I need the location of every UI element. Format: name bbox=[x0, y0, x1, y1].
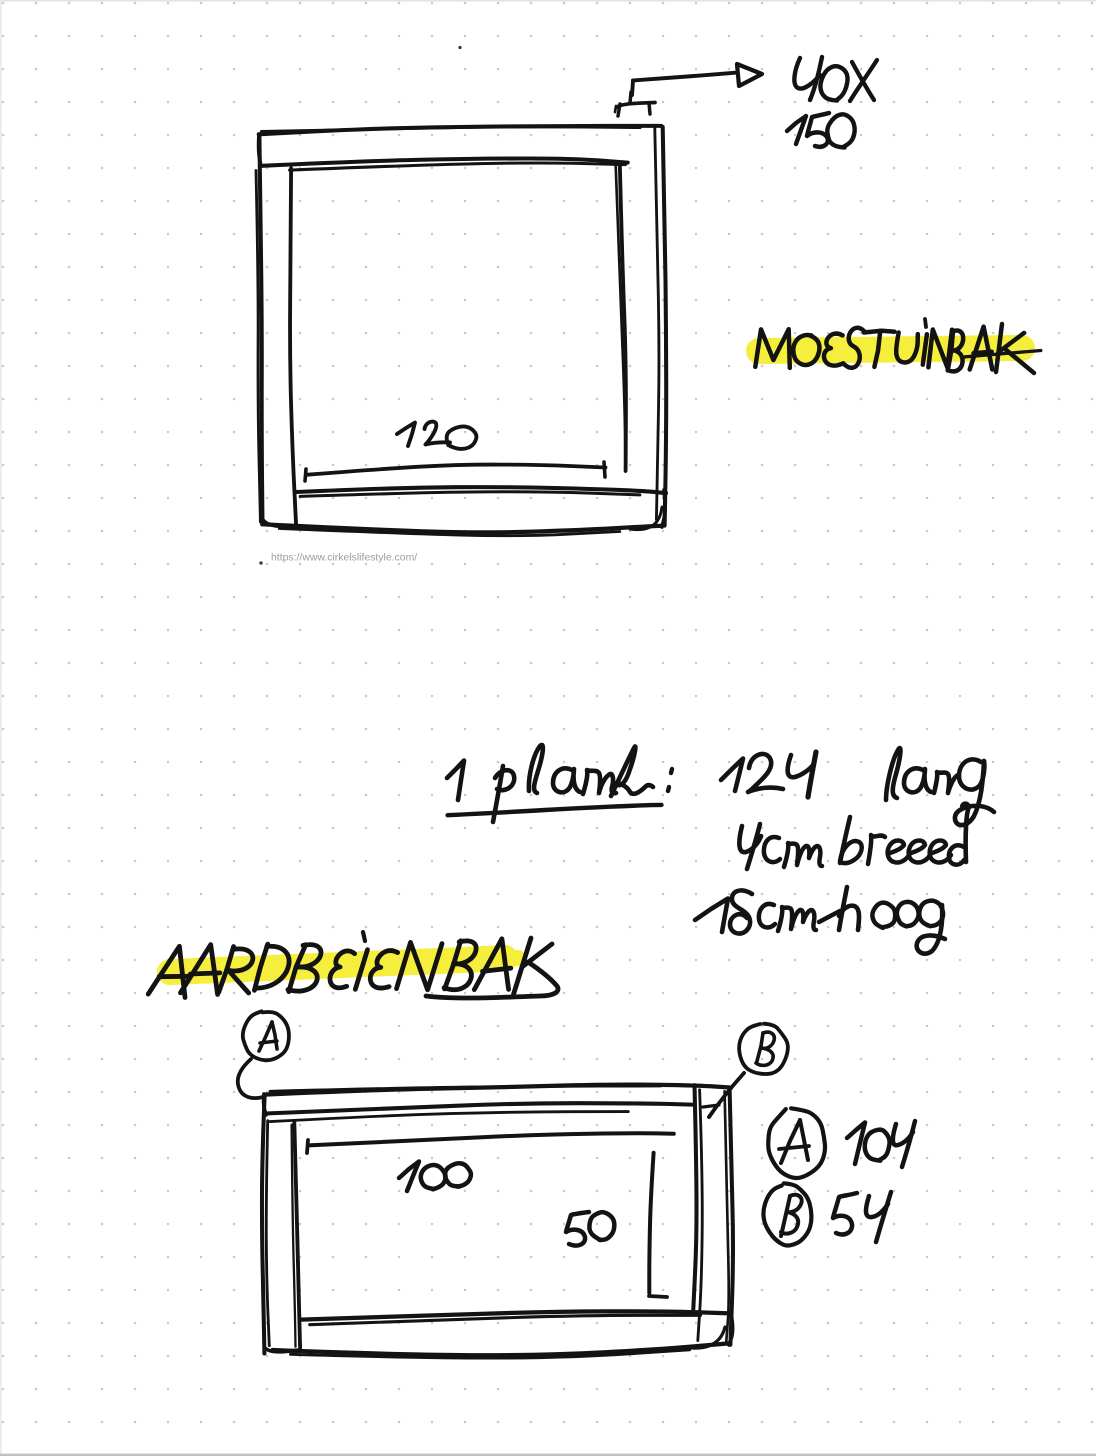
svg-text:https://www.cirkelslifestyle.c: https://www.cirkelslifestyle.com/ bbox=[271, 553, 417, 564]
